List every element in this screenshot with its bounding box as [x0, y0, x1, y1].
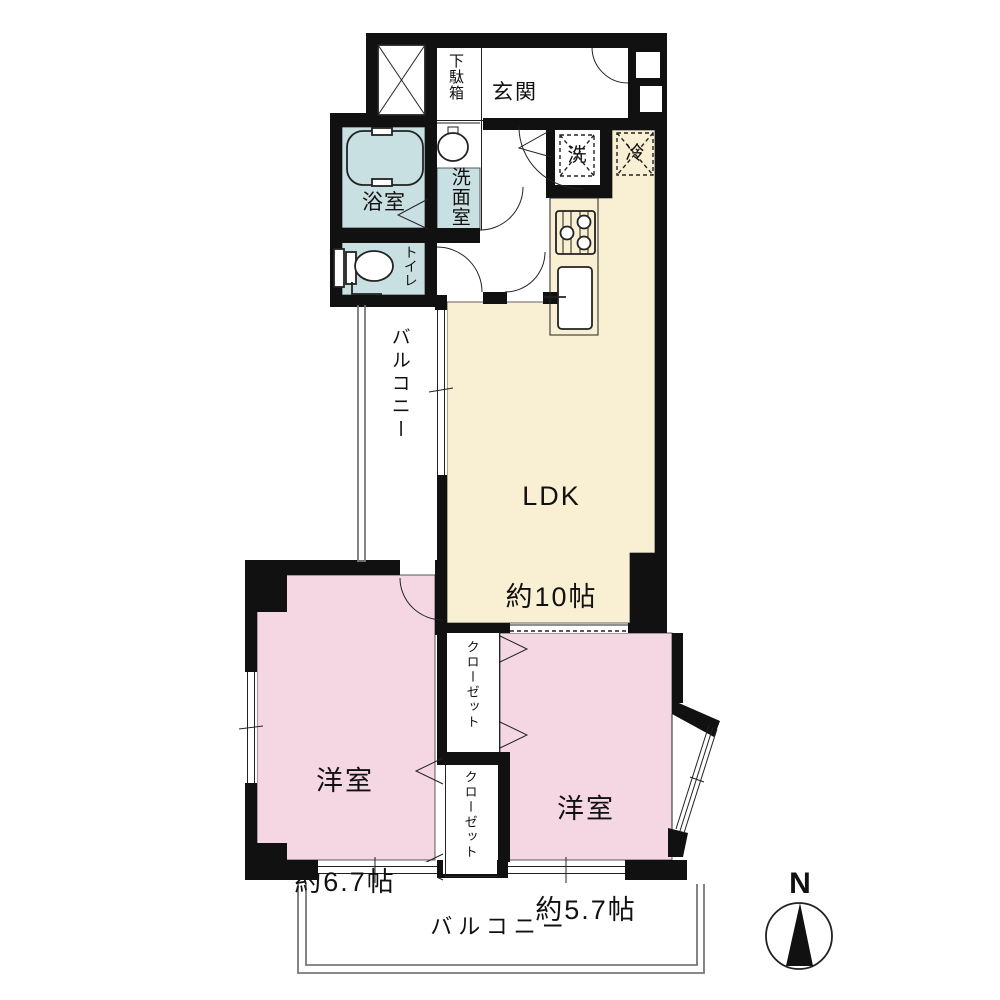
- side-balcony-railing: [358, 305, 365, 562]
- washbasin: [438, 127, 468, 161]
- compass-needle: [786, 903, 813, 966]
- ldk-label: LDK 約10帖: [454, 412, 649, 648]
- entrance-label: 玄関: [483, 80, 547, 105]
- washroom-label: 洗面室: [447, 167, 470, 227]
- bedroom1-size: 約6.7帖: [245, 866, 445, 900]
- shaft-box: [378, 45, 425, 115]
- washer-label: 洗: [563, 145, 591, 168]
- closet1-label: クローゼット: [464, 640, 480, 730]
- compass: [766, 903, 832, 969]
- ldk-name: LDK: [454, 480, 649, 514]
- ldk-door-arc: [505, 252, 545, 292]
- closet2-label: クローゼット: [462, 770, 478, 860]
- front-door-arc: [592, 47, 628, 83]
- floor-plan: 下駄箱 玄関 洗 冷 浴室 洗面室 トイレ バルコニー LDK 約10帖 洋室 …: [0, 0, 1000, 1000]
- toilet-label: トイレ: [402, 245, 419, 287]
- toilet-door-arc: [437, 247, 482, 292]
- bottom-balcony-label: バルコニー: [380, 914, 620, 940]
- bathroom-label: 浴室: [348, 190, 420, 215]
- ldk-size: 約10帖: [454, 581, 649, 615]
- bedroom2-name: 洋室: [486, 793, 686, 827]
- washroom-door-arc: [480, 187, 523, 230]
- fridge-label: 冷: [620, 143, 650, 166]
- compass-north-label: N: [779, 866, 821, 902]
- shoe-cabinet-label: 下駄箱: [446, 53, 464, 101]
- side-balcony-label: バルコニー: [387, 327, 410, 442]
- bedroom1-name: 洋室: [245, 765, 445, 799]
- bedroom1-label: 洋室 約6.7帖: [245, 697, 445, 933]
